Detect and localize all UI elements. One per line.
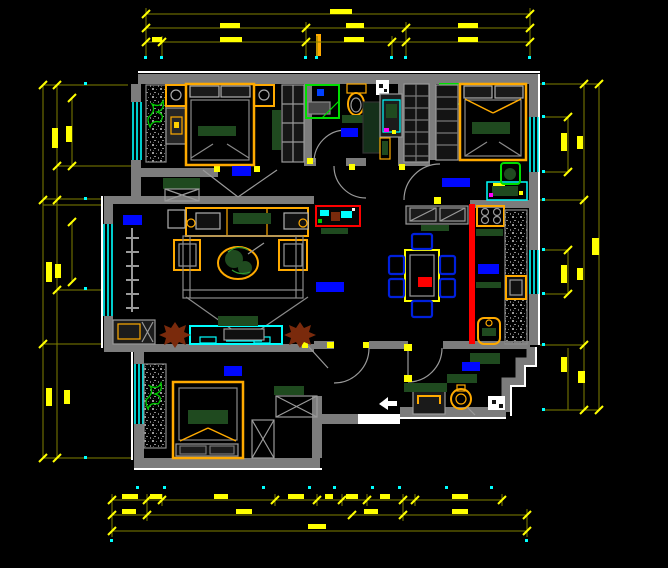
furniture-shape (476, 229, 503, 236)
dim-text (458, 37, 478, 42)
door-leaf-bedroom-3 (308, 346, 328, 368)
furniture-shape (384, 128, 389, 132)
furniture-shape (191, 144, 213, 158)
dim-text (561, 357, 567, 372)
furniture-shape (210, 446, 234, 454)
dim-dots-shape (542, 248, 545, 251)
dim-dots-shape (333, 486, 336, 489)
furniture-shape (495, 86, 523, 98)
walls-shape (529, 172, 538, 250)
north-arrow-icon (379, 397, 397, 410)
dim-dots-shape (542, 198, 545, 201)
dim-text (288, 494, 304, 499)
dim-dots-shape (160, 56, 163, 59)
wall-top (138, 74, 538, 84)
furniture-shape (227, 144, 249, 158)
dim-dots-shape (542, 82, 545, 85)
dim-dots-shape (84, 287, 87, 290)
furniture-shape (321, 228, 348, 234)
dim-text (346, 494, 358, 499)
dim-text (46, 388, 52, 406)
dim-dots-shape (542, 292, 545, 295)
furniture-shape (476, 282, 501, 288)
furniture-shape (382, 141, 388, 155)
floor-plan-canvas[interactable] (0, 0, 668, 568)
furniture-shape (489, 193, 493, 197)
furniture-shape (494, 209, 501, 216)
furniture-shape (190, 86, 219, 97)
furniture-shape (464, 86, 492, 98)
dim-text (592, 238, 599, 255)
furniture-shape (482, 217, 489, 224)
furniture-shape (272, 110, 281, 150)
furniture-shape (492, 186, 518, 196)
furniture-shape (492, 400, 496, 404)
dining-chair (440, 256, 455, 274)
door-hinges-shape (399, 164, 405, 170)
dining-chair (389, 256, 404, 274)
wall-steps (506, 347, 531, 412)
room-label-bedroom-1 (232, 166, 251, 176)
vase (451, 389, 471, 409)
furniture-shape (465, 142, 487, 156)
dim-dots-shape (445, 486, 448, 489)
room-label-dining (418, 277, 432, 287)
walls-shape (131, 84, 141, 102)
dim-text (66, 126, 72, 142)
walls-shape (134, 458, 320, 468)
dim-dots-shape (84, 456, 87, 459)
furniture-shape (318, 219, 322, 223)
furniture-shape (221, 86, 250, 97)
furniture-shape (384, 89, 387, 92)
furniture-shape (259, 90, 269, 100)
dim-text (214, 494, 228, 499)
dim-dots-shape (84, 82, 87, 85)
dim-text (46, 262, 52, 282)
dim-text (577, 268, 583, 280)
furniture-shape (494, 217, 501, 224)
furniture-shape (472, 122, 510, 134)
dim-dots-shape (84, 197, 87, 200)
dim-dots-shape (144, 56, 147, 59)
furniture-shape (386, 104, 397, 118)
dim-text (330, 9, 352, 14)
dim-text (561, 133, 567, 151)
room-label-entry (462, 362, 480, 371)
dim-dots-shape (528, 56, 531, 59)
dim-text (220, 23, 240, 28)
dim-dots-shape (398, 486, 401, 489)
dim-dots-shape (542, 115, 545, 118)
furniture-shape (198, 126, 236, 136)
furniture-shape (171, 90, 181, 100)
dim-dots-shape (404, 56, 407, 59)
white-trim-shape (131, 352, 133, 460)
dim-text (380, 494, 390, 499)
furniture-shape (499, 404, 503, 408)
furniture-shape (208, 428, 236, 441)
walls-shape (134, 352, 144, 364)
furniture-shape (180, 428, 208, 441)
walls-shape (312, 414, 358, 424)
furniture-shape (404, 383, 447, 392)
furniture-shape (331, 212, 340, 221)
furniture-shape (519, 191, 523, 195)
furniture-shape (320, 210, 329, 216)
white-trim-shape (101, 196, 103, 348)
shower-head-icon (317, 89, 324, 96)
door-hinges-shape (349, 164, 355, 170)
dim-dots-shape (315, 56, 318, 59)
walls-shape (529, 84, 538, 117)
door-hinges-shape (434, 197, 441, 204)
dim-text (452, 494, 468, 499)
dim-text (577, 136, 583, 149)
door-arc-hall (334, 166, 366, 198)
sliding-door-track (469, 204, 475, 344)
furniture-shape (274, 386, 304, 395)
nightstand (166, 85, 186, 106)
dim-dots-shape (542, 343, 545, 346)
walls-shape (369, 341, 408, 349)
furniture-shape (392, 130, 396, 134)
furniture-shape (421, 225, 449, 231)
nightstand (254, 85, 274, 106)
door-hinges-shape (404, 344, 412, 351)
dim-dots-shape (542, 408, 545, 411)
dim-text (52, 128, 58, 148)
side-table (168, 210, 185, 228)
furniture-shape (363, 102, 380, 153)
furniture-shape (410, 255, 434, 296)
dim-dots-shape (490, 486, 493, 489)
dim-dots-shape (136, 486, 139, 489)
dim-text (346, 23, 364, 28)
walls-shape (131, 160, 141, 200)
furniture (113, 34, 527, 458)
furniture-shape (180, 446, 206, 454)
white-trim-shape (134, 468, 322, 470)
dim-text (458, 23, 478, 28)
furniture-shape (341, 211, 352, 218)
walls-shape (529, 294, 538, 345)
furniture-shape (187, 219, 195, 227)
dim-text (452, 509, 468, 514)
furniture-shape (196, 213, 220, 229)
walls-shape (104, 316, 113, 344)
furniture-shape (342, 115, 363, 123)
room-label-balcony (123, 215, 142, 225)
furniture-shape (456, 394, 466, 404)
furniture-shape (504, 168, 516, 180)
furniture-shape (284, 244, 302, 266)
door-hinges-shape (307, 158, 313, 164)
dim-dots-shape (304, 56, 307, 59)
furniture-shape (308, 102, 330, 114)
dim-text (122, 509, 136, 514)
dim-dots-shape (110, 539, 113, 542)
dim-text (236, 509, 252, 514)
dim-dots-shape (390, 56, 393, 59)
furniture-shape (493, 99, 521, 113)
cad-viewport (0, 0, 668, 568)
dim-dots-shape (525, 539, 528, 542)
walls-shape (104, 196, 148, 204)
walls-shape (104, 344, 314, 352)
furniture-shape (179, 244, 196, 266)
dim-text (150, 494, 162, 499)
dim-text (308, 524, 326, 529)
walls-shape (134, 424, 144, 458)
door-hinges-shape (214, 166, 220, 172)
door-hinges-shape (404, 375, 412, 382)
furniture-shape (174, 122, 179, 128)
dining-chair (412, 301, 432, 317)
room-label-living (316, 282, 344, 292)
furniture-shape (465, 99, 493, 113)
furniture-shape (351, 98, 361, 112)
dim-text (364, 509, 378, 514)
white-trim-shape (400, 417, 506, 419)
furniture-shape (248, 243, 264, 254)
door-arc-bedroom-2 (404, 164, 440, 200)
room-label-kitchen (478, 264, 499, 274)
dim-text (220, 37, 242, 42)
white-trim-shape (138, 71, 540, 73)
room-label-bedroom-3 (224, 366, 242, 376)
door-hinges-shape (327, 342, 334, 348)
white-trim-shape (538, 74, 540, 345)
dim-dots-shape (542, 170, 545, 173)
dim-dots-shape (371, 486, 374, 489)
door-arc-corridor (334, 348, 369, 383)
dim-dots-shape (308, 486, 311, 489)
door-hinges-shape (254, 166, 260, 172)
shelf (436, 85, 458, 160)
furniture-shape (218, 316, 258, 326)
dining-chair (389, 279, 404, 297)
furniture-shape (352, 208, 355, 211)
console-plant (163, 178, 200, 189)
walls-shape (148, 196, 314, 204)
furniture-shape (447, 374, 477, 383)
dining-chair (412, 234, 432, 249)
furniture-shape (486, 320, 492, 326)
dim-text (344, 37, 364, 42)
dim-text (325, 494, 333, 499)
walls-shape (104, 204, 113, 224)
dim-text (64, 390, 70, 404)
dining-chair (440, 279, 455, 297)
toilet (347, 84, 366, 93)
entry-threshold (358, 414, 400, 424)
room-label-bathroom (341, 128, 358, 137)
door-hinges-shape (363, 342, 369, 348)
furniture-shape (188, 410, 228, 424)
dim-text (578, 371, 585, 383)
furniture-shape (482, 209, 489, 216)
room-label-bedroom-2 (442, 178, 470, 187)
dim-dots-shape (262, 486, 265, 489)
tv (224, 329, 264, 340)
furniture-shape (379, 84, 383, 88)
dim-text (561, 265, 567, 283)
furniture-shape (233, 213, 271, 224)
dim-dots-shape (163, 486, 166, 489)
dim-text (55, 264, 61, 278)
furniture-shape (499, 142, 521, 156)
dim-text (122, 494, 138, 499)
dim-text (152, 37, 162, 42)
furniture-shape (200, 337, 216, 343)
stove (477, 206, 504, 226)
door-arc-entry (408, 348, 442, 382)
furniture-shape (482, 328, 496, 336)
